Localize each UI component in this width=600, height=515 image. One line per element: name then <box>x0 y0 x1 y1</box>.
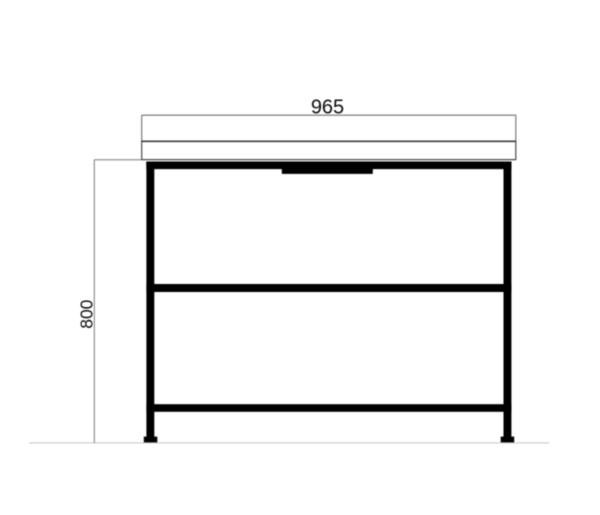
svg-text:800: 800 <box>76 299 96 328</box>
